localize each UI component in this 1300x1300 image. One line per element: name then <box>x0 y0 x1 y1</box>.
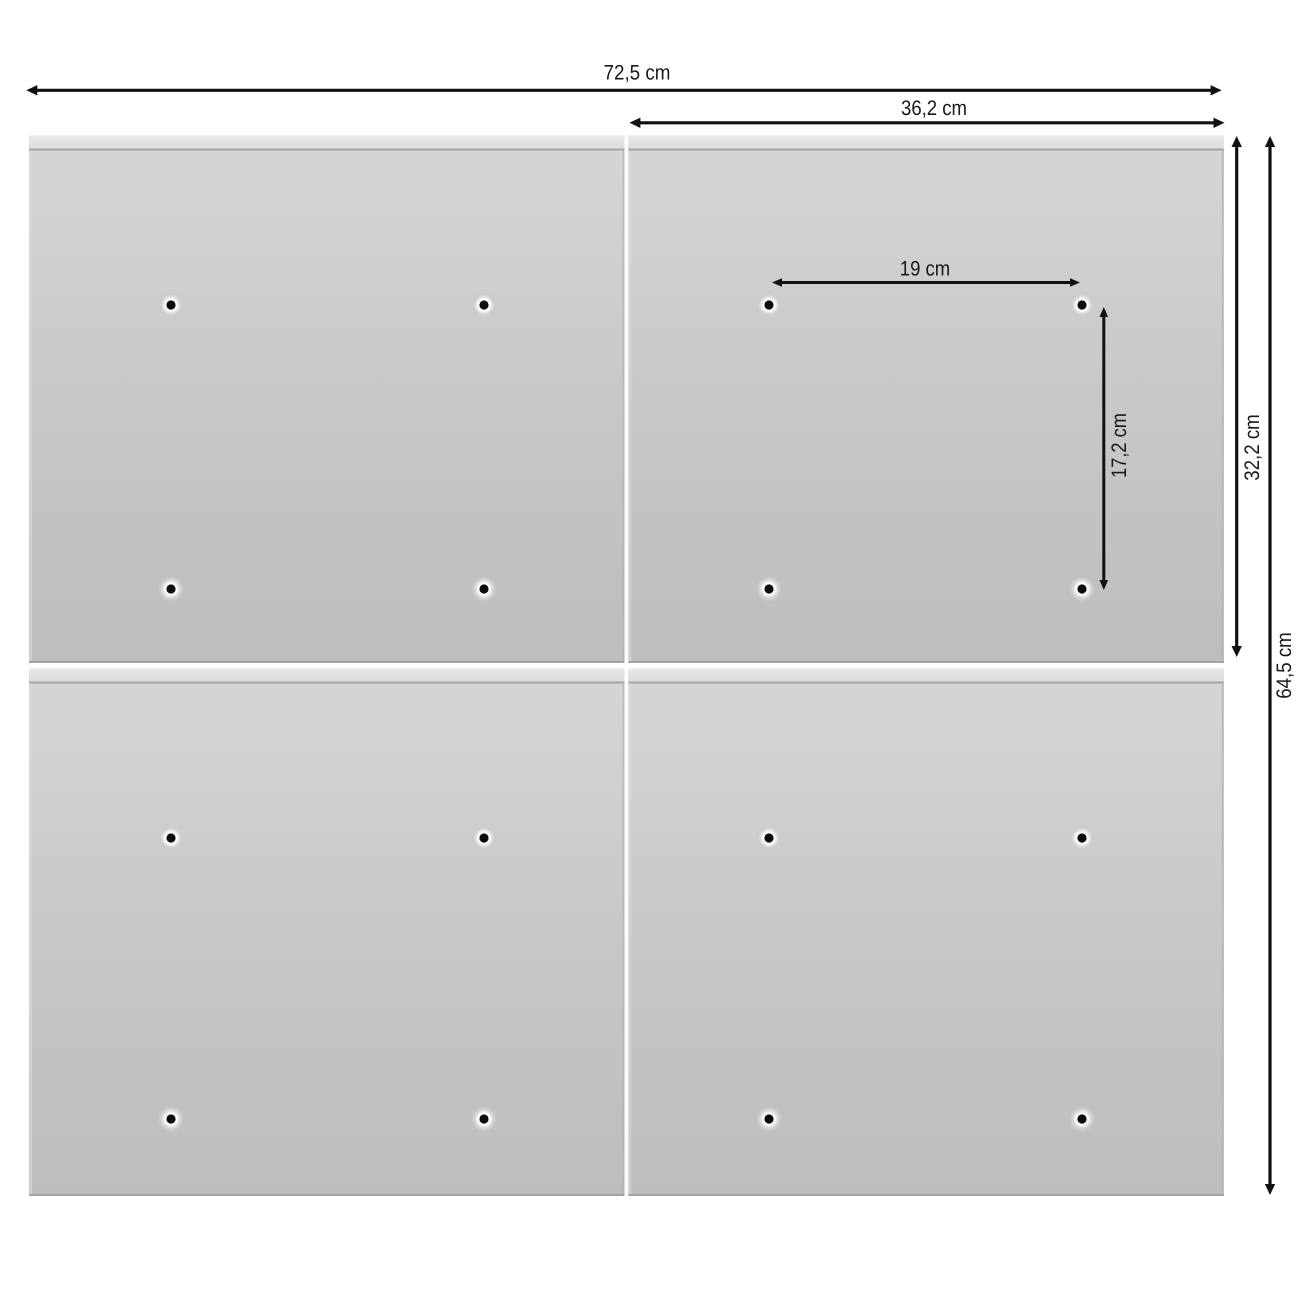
svg-text:17,2 cm: 17,2 cm <box>1108 413 1131 478</box>
svg-text:36,2 cm: 36,2 cm <box>901 97 967 120</box>
svg-text:32,2 cm: 32,2 cm <box>1241 414 1264 481</box>
svg-text:72,5 cm: 72,5 cm <box>604 62 671 85</box>
svg-text:19 cm: 19 cm <box>900 258 951 281</box>
svg-text:64,5 cm: 64,5 cm <box>1273 632 1296 699</box>
